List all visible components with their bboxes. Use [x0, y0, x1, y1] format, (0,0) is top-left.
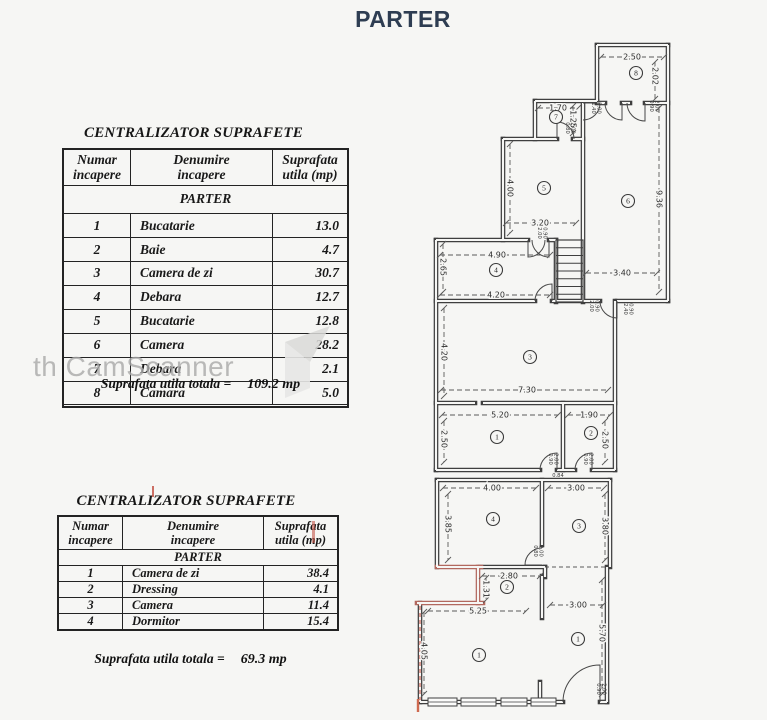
- cell-num: 3: [58, 597, 123, 613]
- room-number: 1: [477, 651, 481, 660]
- room-number: 3: [577, 522, 581, 531]
- door-size-labels: 1.402.000.902.000.802.002.000.902.000.90…: [532, 100, 660, 695]
- table-row: 3Camera de zi30.7: [63, 262, 348, 286]
- surface-table-2: Numar incapere Denumire incapere Suprafa…: [57, 515, 315, 627]
- dimension-label: 4.00: [483, 484, 501, 493]
- total-label: Suprafata utila totala =: [94, 651, 224, 666]
- cell-name: Bucatarie: [131, 214, 273, 238]
- cell-val: 15.4: [264, 613, 339, 630]
- windows: [428, 698, 556, 706]
- dimension-label: 4.90: [488, 251, 506, 260]
- room-number: 4: [494, 266, 498, 275]
- door-size-label: 0.90: [595, 683, 601, 695]
- cell-name: Dormitor: [123, 613, 264, 630]
- door-size-label: 2.00: [601, 683, 607, 695]
- table2-title: CENTRALIZATOR SUPRAFETE: [57, 493, 315, 510]
- room-number: 3: [528, 353, 532, 362]
- cell-val: 13.0: [273, 214, 349, 238]
- room-number: 1: [576, 635, 580, 644]
- door-size-label: 2.40: [622, 303, 628, 315]
- door-size-label: 2.00: [596, 102, 602, 114]
- dimension-label: 3.80: [600, 517, 609, 535]
- table-row: 3Camera11.4: [58, 597, 338, 613]
- door-size-label: 2.00: [588, 453, 594, 465]
- dimension-label: 2.50: [600, 431, 609, 449]
- section-row: PARTER: [63, 185, 348, 214]
- cell-name: Camera de zi: [123, 565, 264, 581]
- cell-num: 1: [58, 565, 123, 581]
- red-scan-mark: [312, 521, 315, 543]
- dimension-label: 1.31: [481, 580, 490, 598]
- cell-num: 1: [63, 214, 131, 238]
- dimension-label: 3.00: [569, 601, 587, 610]
- cell-name: Debara: [131, 285, 273, 309]
- cell-name: Dressing: [123, 581, 264, 597]
- dimension-label: 3.85: [443, 515, 452, 533]
- col-header-suprafata: Suprafata utila (mp): [273, 149, 349, 185]
- cell-num: 5: [63, 309, 131, 333]
- door-size-label: 0.90: [648, 100, 654, 112]
- dimension-label: 4.05: [419, 642, 428, 660]
- door-size-label: 0.90: [582, 453, 588, 465]
- cell-val: 4.7: [273, 238, 349, 262]
- dimension-label: 2.50: [623, 53, 641, 62]
- stairs: [556, 240, 583, 302]
- dimension-label: 5.25: [469, 607, 487, 616]
- room-number: 2: [505, 583, 509, 592]
- floorplan: 2.502.021.701.259.364.003.204.902.654.20…: [410, 35, 720, 715]
- cell-val: 12.7: [273, 285, 349, 309]
- cell-num: 2: [58, 581, 123, 597]
- scanned-page: { "page": { "heading": "PARTER" }, "wate…: [0, 0, 767, 720]
- cell-val: 38.4: [264, 565, 339, 581]
- cell-name: Camera: [123, 597, 264, 613]
- cell-num: 4: [58, 613, 123, 630]
- dimension-label: 2.80: [500, 572, 518, 581]
- table-row: 2Dressing4.1: [58, 581, 338, 597]
- table-row: 2Baie4.7: [63, 238, 348, 262]
- section-label: PARTER: [63, 185, 348, 214]
- cell-name: Camera de zi: [131, 262, 273, 286]
- dimension-label: 4.20: [439, 343, 448, 361]
- cell-name: Bucatarie: [131, 309, 273, 333]
- cell-val: 30.7: [273, 262, 349, 286]
- dimension-label: 2.50: [439, 430, 448, 448]
- dimension-label: 9.36: [654, 190, 663, 208]
- col-header-suprafata: Suprafata utila (mp): [264, 516, 339, 549]
- door-size-label: 2.00: [570, 122, 576, 134]
- dimension-label: 4.00: [505, 179, 514, 197]
- door-size-label: 0.80: [564, 122, 570, 134]
- col-header-denumire: Denumire incapere: [123, 516, 264, 549]
- dimension-label: 1.90: [580, 411, 598, 420]
- page-title: PARTER: [328, 6, 478, 33]
- table1-title: CENTRALIZATOR SUPRAFETE: [62, 125, 325, 142]
- room-number: 7: [554, 113, 558, 122]
- room-number: 8: [634, 69, 638, 78]
- door-size-label: 0.80: [532, 545, 538, 557]
- cell-name: Baie: [131, 238, 273, 262]
- cell-num: 4: [63, 285, 131, 309]
- col-header-numar: Numar incapere: [63, 149, 131, 185]
- door-size-label: 2.00: [654, 100, 660, 112]
- table2-header-row: Numar incapere Denumire incapere Suprafa…: [58, 516, 338, 549]
- door-size-label: 0.90: [594, 300, 600, 312]
- dimension-label: 3.40: [613, 269, 631, 278]
- door-size-label: 2.00: [538, 545, 544, 557]
- section-row: PARTER: [58, 549, 338, 565]
- dimension-label: 5.20: [491, 411, 509, 420]
- red-scan-mark: [152, 486, 154, 497]
- table2-total: Suprafata utila totala =69.3 mp: [68, 651, 313, 668]
- cell-num: 3: [63, 262, 131, 286]
- door-size-label: 2.00: [553, 453, 559, 465]
- room-number: 6: [626, 197, 630, 206]
- total-value: 109.2 mp: [247, 377, 300, 392]
- walls: [417, 45, 668, 712]
- door-size-label: 0.90: [547, 453, 553, 465]
- dimension-label: 4.20: [487, 291, 505, 300]
- room-number: 5: [542, 184, 546, 193]
- cell-num: 2: [63, 238, 131, 262]
- door-size-label: 0.90: [542, 227, 548, 239]
- table-row: 4Debara12.7: [63, 285, 348, 309]
- door-size-label: 0.84: [552, 473, 564, 479]
- col-header-denumire: Denumire incapere: [131, 149, 273, 185]
- door-size-label: 0.90: [628, 303, 634, 315]
- table1-total: Suprafata utila totala =109.2 mp: [78, 376, 323, 393]
- dimension-label: 3.00: [567, 484, 585, 493]
- table-row: 1Camera de zi38.4: [58, 565, 338, 581]
- room-number: 1: [495, 433, 499, 442]
- room-number: 2: [589, 429, 593, 438]
- room-number: 4: [491, 515, 495, 524]
- door-size-label: 2.00: [588, 300, 594, 312]
- dimension-label: 5.70: [597, 624, 606, 642]
- cell-val: 4.1: [264, 581, 339, 597]
- dimension-label: 2.65: [438, 258, 447, 276]
- total-value: 69.3 mp: [241, 652, 287, 667]
- dimension-label: 2.02: [650, 67, 659, 85]
- total-label: Suprafata utila totala =: [101, 376, 231, 391]
- section-label: PARTER: [58, 549, 338, 565]
- door-size-label: 2.00: [536, 227, 542, 239]
- col-header-numar: Numar incapere: [58, 516, 123, 549]
- cell-val: 11.4: [264, 597, 339, 613]
- table-row: 4Dormitor15.4: [58, 613, 338, 630]
- dimension-label: 7.30: [518, 386, 536, 395]
- table1-header-row: Numar incapere Denumire incapere Suprafa…: [63, 149, 348, 185]
- table-row: 1Bucatarie13.0: [63, 214, 348, 238]
- door-size-label: 1.40: [590, 102, 596, 114]
